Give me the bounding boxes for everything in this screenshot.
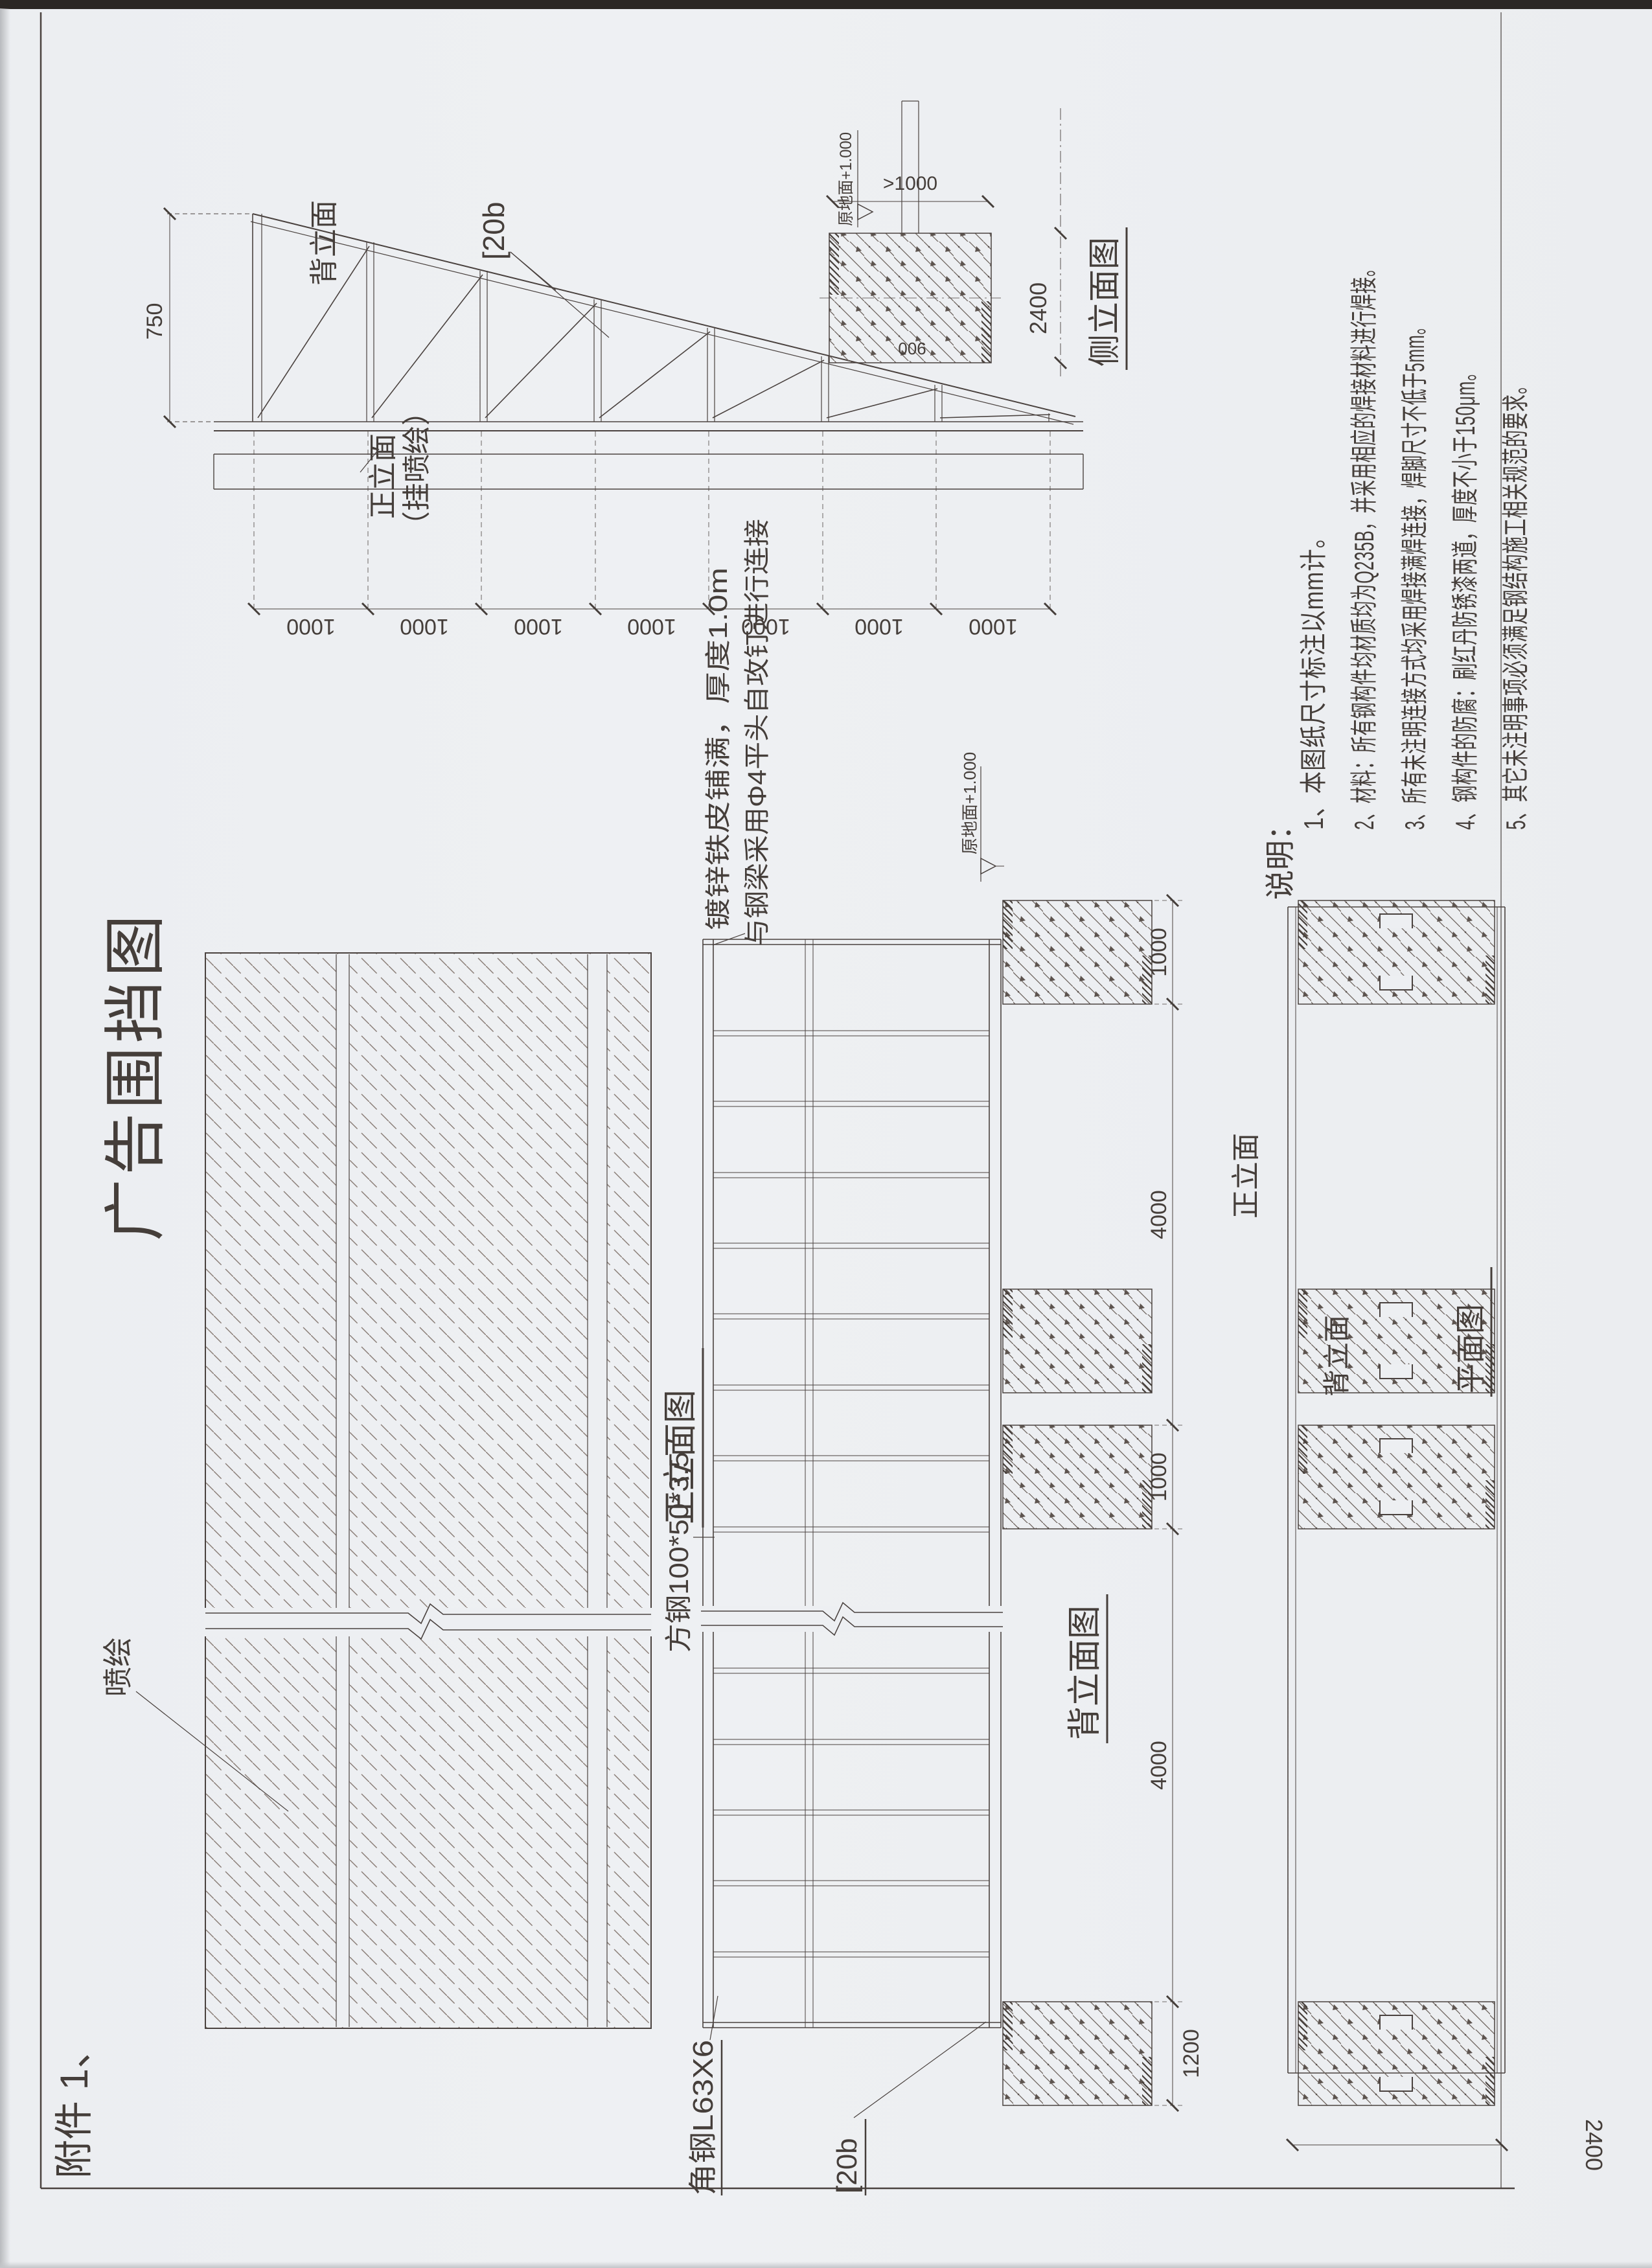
drawing-canvas: 附件 1、 广告围挡图 喷绘 正立面图 — [0, 0, 1652, 2268]
note-item-4: 4、钢构件的防腐：刷红丹防锈漆两道，厚度不小于150μm。 — [1450, 363, 1480, 830]
page-title: 广告围挡图 — [101, 911, 170, 1241]
truss-dim-3: 1000 — [627, 614, 676, 639]
back-view-title: 背立面图 — [1066, 1605, 1104, 1740]
back-elevation-view: 镀锌铁皮铺满，厚度1.0m 与钢梁采用Φ4平头自攻钉进行连接 方钢100*50*… — [663, 519, 1262, 2195]
plan-back-label: 背立面 — [1322, 1315, 1352, 1397]
channel-label-back: [20b — [831, 2138, 863, 2194]
square-tube-label: 方钢100*50*3.5 — [663, 1452, 694, 1653]
drawing-sheet: 附件 1、 广告围挡图 喷绘 正立面图 — [0, 0, 1652, 2268]
sheet-note-line2: 与钢梁采用Φ4平头自攻钉进行连接 — [743, 519, 772, 946]
note-item-3: 3、所有未注明连接方式均采用焊接满焊连接，焊脚尺寸不低于5mm。 — [1399, 318, 1430, 830]
back-view-dim-chain: 1200 4000 1000 4000 1000 — [1147, 895, 1204, 2111]
dim-750: 750 — [143, 303, 167, 340]
side-width-dim: 900 — [898, 339, 926, 358]
truss-dim-6: 1000 — [969, 614, 1018, 639]
back-level-label: 原地面+1.000 — [960, 752, 980, 854]
truss-dim-2: 1000 — [514, 614, 563, 639]
dim-4000a: 4000 — [1147, 1741, 1171, 1790]
note-item-2: 2、材料：所有钢构件均材质均为Q235B，并采用相应的焊接材料进行焊接。 — [1349, 260, 1379, 830]
dim-1000b: 1000 — [1147, 928, 1171, 977]
plan-view: 背立面 平面图 2400 — [1287, 900, 1607, 2171]
truss-dim-0: 1000 — [286, 614, 336, 639]
truss-height-dim: 750 — [143, 208, 250, 428]
note-item-5: 5、其它未注明事项必须满足钢结构施工相关规范的要求。 — [1500, 376, 1531, 830]
dim-1200: 1200 — [1179, 2029, 1204, 2078]
truss-channel-label: [20b — [477, 201, 511, 260]
truss-back-label: 背立面 — [308, 200, 340, 286]
side-depth-dim: >1000 — [883, 173, 937, 194]
scanner-edge-top — [0, 0, 1652, 8]
side-height-dim: 2400 — [1025, 282, 1051, 334]
scanner-edge-left — [0, 0, 10, 2268]
truss-dim-4: 1000 — [741, 614, 790, 639]
dim-4000b: 4000 — [1147, 1190, 1171, 1239]
front-elevation-view: 喷绘 正立面图 — [101, 953, 703, 2028]
back-view-piers — [1003, 900, 1152, 2105]
scanner-edge-bottom — [0, 2262, 1652, 2268]
side-level-label: 原地面+1.000 — [837, 132, 855, 226]
dim-1000a: 1000 — [1147, 1452, 1171, 1502]
angle-steel-label: 角钢L63X6 — [687, 2040, 719, 2195]
attachment-label: 附件 1、 — [52, 2030, 96, 2179]
plan-piers — [1298, 900, 1495, 2105]
truss-front-label-1: 正立面 — [367, 433, 399, 519]
truss-front-label-2: （挂喷绘） — [401, 397, 433, 540]
truss-dim-5: 1000 — [855, 614, 904, 639]
side-elevation-view: 原地面+1.000 >1000 900 2400 侧立面图 — [820, 101, 1127, 376]
plan-width-dim: 2400 — [1581, 2119, 1607, 2171]
plan-view-title: 平面图 — [1454, 1304, 1487, 1393]
spray-label: 喷绘 — [101, 1637, 135, 1697]
note-item-1: 1、本图纸尺寸标注以mm计。 — [1298, 525, 1329, 830]
grid-posts — [713, 1031, 989, 1957]
side-view-title: 侧立面图 — [1086, 237, 1123, 367]
notes-heading: 说明： — [1263, 810, 1297, 900]
notes-block: 说明： 1、本图纸尺寸标注以mm计。 2、材料：所有钢构件均材质均为Q235B，… — [1263, 260, 1531, 900]
back-front-label: 正立面 — [1230, 1133, 1262, 1219]
sheet-note-line1: 镀锌铁皮铺满，厚度1.0m — [704, 567, 733, 930]
truss-dim-1: 1000 — [400, 614, 449, 639]
